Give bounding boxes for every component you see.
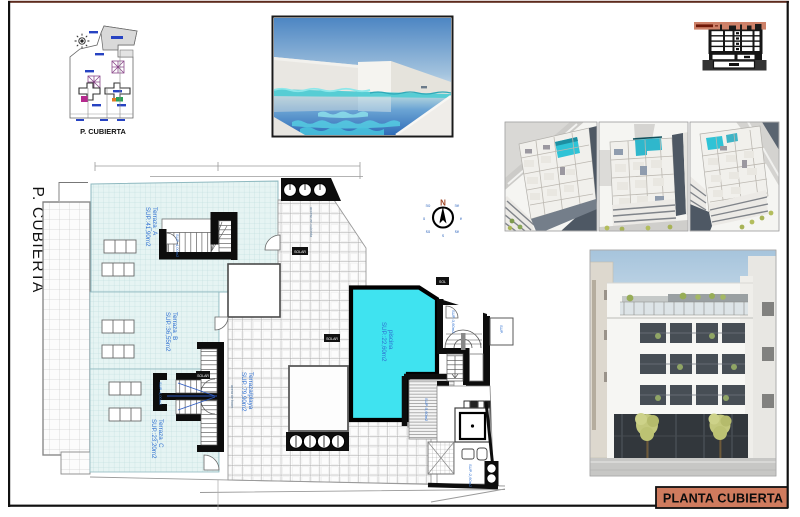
svg-text:so: so: [426, 229, 431, 234]
svg-text:ne: ne: [455, 203, 460, 208]
svg-text:acceso en cubierta: acceso en cubierta: [309, 207, 313, 237]
svg-text:acera de horm.: acera de horm.: [230, 385, 234, 409]
svg-text:SUP.:5,60m2: SUP.:5,60m2: [424, 398, 429, 422]
svg-text:SUP.: SUP.: [499, 325, 504, 334]
svg-text:Terraza_C: Terraza_C: [157, 419, 164, 448]
svg-text:no: no: [426, 203, 431, 208]
svg-text:Terraza_B: Terraza_B: [171, 312, 178, 340]
svg-text:se: se: [455, 229, 460, 234]
svg-text:SUP.:3,60m2: SUP.:3,60m2: [451, 310, 456, 334]
svg-text:PLANTA CUBIERTA: PLANTA CUBIERTA: [663, 492, 783, 506]
svg-text:SOLAR: SOLAR: [326, 337, 338, 341]
svg-text:SOL: SOL: [439, 280, 446, 284]
svg-text:Terraza/playa: Terraza/playa: [247, 372, 254, 410]
svg-text:SUP.:23,20m2: SUP.:23,20m2: [150, 419, 157, 459]
svg-text:Terraza_A: Terraza_A: [151, 207, 158, 236]
svg-text:SUP.:2,60m2: SUP.:2,60m2: [468, 464, 473, 488]
svg-text:P. CUBIERTA: P. CUBIERTA: [80, 127, 126, 136]
svg-text:SUP.:22,60m2: SUP.:22,60m2: [380, 322, 387, 362]
svg-text:SUP.:4,00m2: SUP.:4,00m2: [158, 382, 163, 406]
svg-text:SUP.:41,90m2: SUP.:41,90m2: [144, 207, 151, 247]
svg-text:N: N: [440, 199, 446, 208]
svg-text:SOLAR: SOLAR: [197, 374, 209, 378]
svg-text:s: s: [442, 233, 444, 238]
svg-text:piscina: piscina: [387, 330, 394, 350]
svg-text:SOLAR: SOLAR: [294, 250, 306, 254]
svg-text:SUP.:4,00m2: SUP.:4,00m2: [175, 234, 180, 258]
svg-text:SUP.:36,55m2: SUP.:36,55m2: [164, 312, 171, 352]
svg-text:SUP.:79,90m2: SUP.:79,90m2: [240, 372, 247, 412]
